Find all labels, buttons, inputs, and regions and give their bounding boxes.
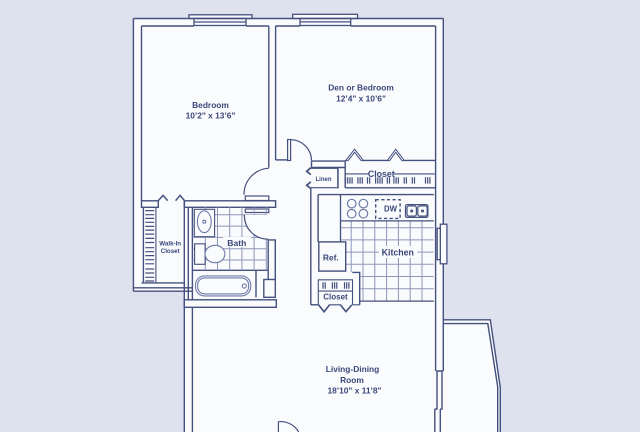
svg-text:Kitchen: Kitchen (382, 248, 414, 258)
svg-text:Linen: Linen (316, 177, 332, 183)
svg-text:Ref.: Ref. (323, 252, 339, 262)
svg-text:Closet: Closet (368, 169, 395, 179)
svg-text:Closet: Closet (323, 293, 348, 302)
svg-text:Den or Bedroom: Den or Bedroom (328, 83, 394, 93)
svg-text:12’4" x 10’6": 12’4" x 10’6" (336, 94, 386, 104)
svg-text:DW: DW (384, 204, 398, 213)
svg-text:Bedroom: Bedroom (192, 100, 229, 110)
svg-text:18’10" x 11’8": 18’10" x 11’8" (327, 386, 381, 396)
svg-text:Walk-In: Walk-In (159, 240, 181, 247)
svg-text:10’2" x 13’6": 10’2" x 13’6" (186, 111, 236, 121)
svg-text:Room: Room (340, 375, 364, 385)
svg-text:Living-Dining: Living-Dining (326, 364, 380, 374)
svg-text:Closet: Closet (161, 248, 180, 255)
svg-text:Bath: Bath (227, 238, 246, 248)
